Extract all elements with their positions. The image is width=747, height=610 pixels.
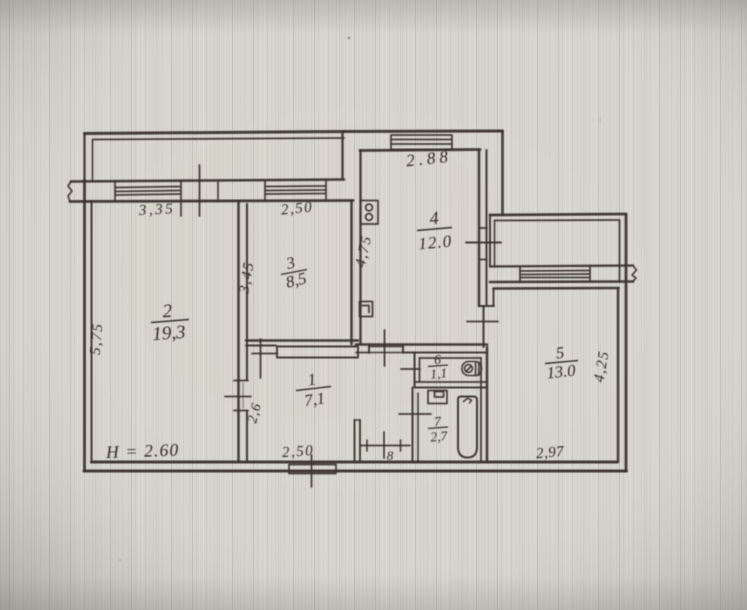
svg-text:2,50: 2,50: [280, 199, 314, 218]
svg-text:2,7: 2,7: [430, 428, 449, 445]
svg-text:H = 2.60: H = 2.60: [105, 439, 180, 462]
svg-text:1,1: 1,1: [430, 365, 448, 381]
svg-text:7,1: 7,1: [303, 388, 326, 410]
svg-text:4: 4: [429, 208, 440, 229]
svg-text:2,50: 2,50: [281, 443, 314, 461]
svg-text:8: 8: [387, 448, 394, 463]
svg-text:13.0: 13.0: [546, 361, 577, 383]
svg-text:12.0: 12.0: [418, 232, 453, 254]
svg-text:3,35: 3,35: [138, 201, 176, 219]
svg-text:5,75: 5,75: [88, 322, 107, 356]
svg-text:19,3: 19,3: [152, 322, 187, 345]
svg-text:2,97: 2,97: [535, 444, 566, 462]
